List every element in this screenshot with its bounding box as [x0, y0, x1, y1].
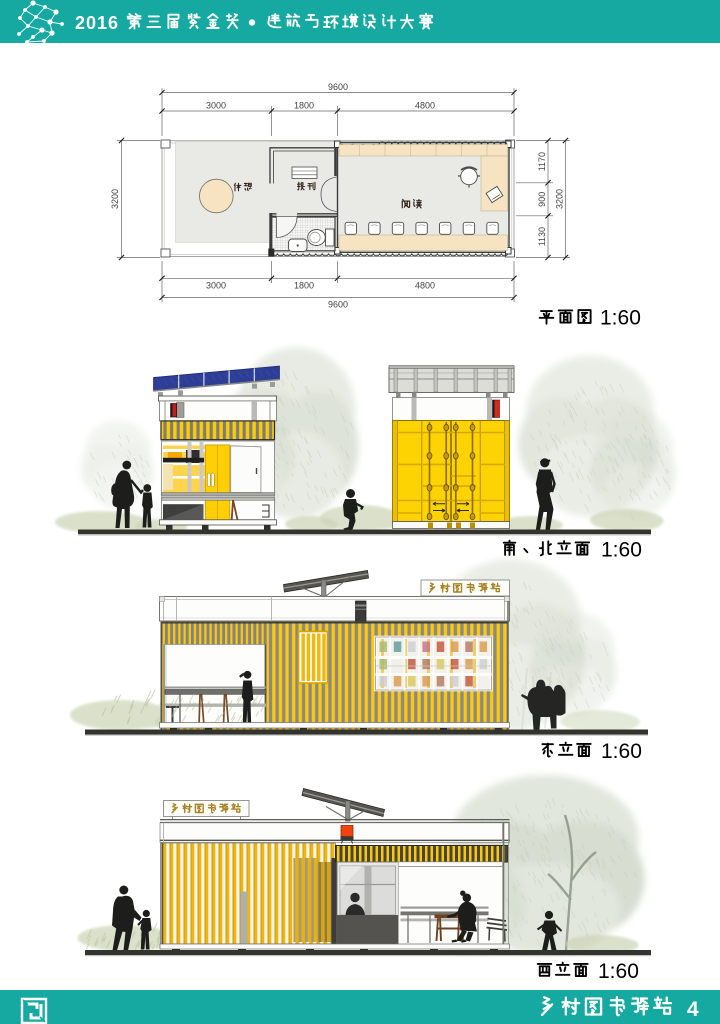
svg-text:1:60: 1:60	[600, 307, 641, 330]
svg-text:900: 900	[537, 192, 547, 207]
svg-text:3200: 3200	[555, 189, 565, 209]
svg-text:3200: 3200	[110, 189, 120, 209]
svg-text:1:60: 1:60	[601, 539, 642, 562]
svg-text:1170: 1170	[537, 152, 547, 171]
svg-text:1800: 1800	[294, 101, 314, 111]
svg-text:1130: 1130	[537, 227, 547, 246]
svg-text:4: 4	[687, 998, 699, 1021]
svg-text:3000: 3000	[206, 281, 226, 291]
svg-text:9600: 9600	[328, 82, 348, 92]
svg-text:4800: 4800	[415, 101, 435, 111]
svg-text:3000: 3000	[206, 101, 226, 111]
svg-text:1:60: 1:60	[598, 960, 639, 983]
svg-text:4800: 4800	[415, 281, 435, 291]
svg-text:1:60: 1:60	[601, 740, 642, 763]
svg-text:2016: 2016	[75, 13, 119, 33]
svg-text:9600: 9600	[328, 300, 348, 310]
svg-text:1800: 1800	[294, 281, 314, 291]
